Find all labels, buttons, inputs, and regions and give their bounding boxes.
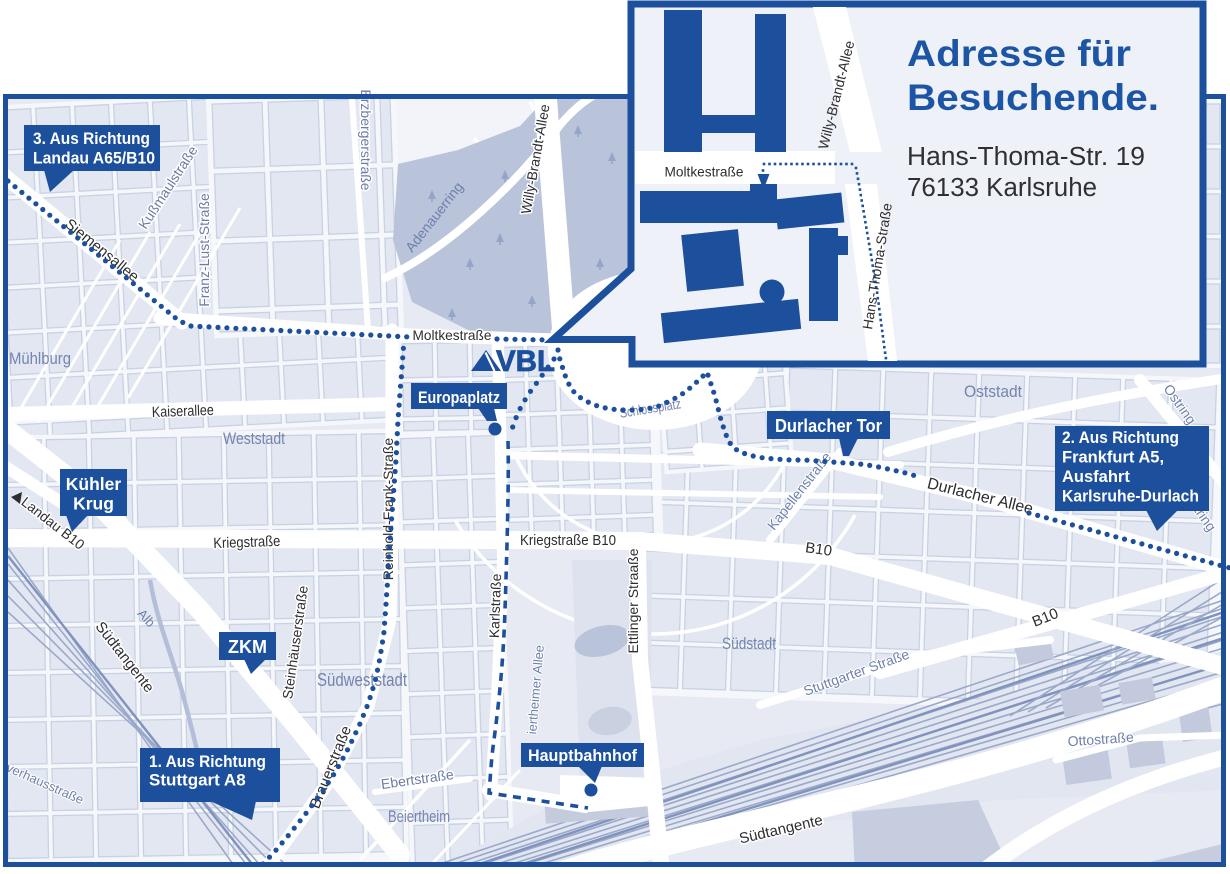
svg-text:Durlacher Tor: Durlacher Tor — [775, 416, 882, 436]
svg-text:Kühler: Kühler — [66, 474, 122, 494]
svg-text:Oststadt: Oststadt — [964, 382, 1022, 401]
svg-text:Beiertheim: Beiertheim — [388, 807, 450, 826]
svg-text:Südstadt: Südstadt — [722, 634, 776, 653]
svg-text:Karlstraße: Karlstraße — [486, 573, 504, 638]
svg-text:VBL: VBL — [496, 345, 555, 378]
svg-text:Adresse für: Adresse für — [907, 32, 1131, 74]
svg-text:Ettlinger Straaße: Ettlinger Straaße — [625, 548, 641, 653]
svg-text:Kriegstraße: Kriegstraße — [213, 533, 281, 552]
svg-text:Moltkestraße: Moltkestraße — [413, 327, 492, 343]
svg-text:Weststadt: Weststadt — [223, 429, 285, 448]
svg-text:Kaiserallee: Kaiserallee — [152, 402, 215, 421]
svg-text:3. Aus Richtung: 3. Aus Richtung — [33, 129, 150, 148]
svg-text:Landau A65/B10: Landau A65/B10 — [33, 149, 155, 168]
svg-text:Ausfahrt: Ausfahrt — [1062, 468, 1130, 486]
svg-text:Frankfurt A5,: Frankfurt A5, — [1062, 449, 1164, 467]
svg-text:2. Aus Richtung: 2. Aus Richtung — [1062, 429, 1179, 447]
svg-text:Europaplatz: Europaplatz — [418, 388, 500, 407]
svg-text:Hauptbahnhof: Hauptbahnhof — [528, 746, 637, 765]
svg-text:Franz-Lust-Straße: Franz-Lust-Straße — [196, 193, 212, 307]
svg-text:Moltkestraße: Moltkestraße — [665, 164, 744, 180]
svg-text:76133 Karlsruhe: 76133 Karlsruhe — [907, 174, 1097, 202]
svg-text:Hans-Thoma-Str. 19: Hans-Thoma-Str. 19 — [907, 143, 1145, 171]
svg-text:Kriegstraße B10: Kriegstraße B10 — [520, 532, 616, 549]
svg-text:Stuttgart A8: Stuttgart A8 — [149, 771, 246, 790]
svg-text:1. Aus Richtung: 1. Aus Richtung — [149, 752, 266, 771]
svg-text:Mühlburg: Mühlburg — [9, 349, 71, 368]
svg-text:Krug: Krug — [73, 494, 114, 514]
svg-text:ZKM: ZKM — [228, 637, 267, 657]
svg-text:Besuchende.: Besuchende. — [907, 76, 1159, 118]
svg-text:Karlsruhe-Durlach: Karlsruhe-Durlach — [1062, 488, 1199, 506]
svg-text:Südweststadt: Südweststadt — [317, 670, 407, 690]
svg-text:Erzbergerstraße: Erzbergerstraße — [358, 89, 374, 190]
